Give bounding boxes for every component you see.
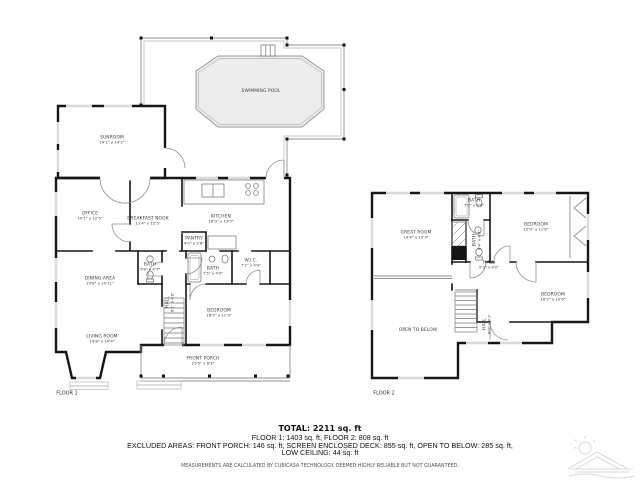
floorplan-drawing [0, 0, 640, 480]
door-arc [165, 148, 185, 168]
floor1-caption: FLOOR 1 [56, 390, 77, 396]
door-arc [490, 322, 508, 340]
label-hall-floor1: HALL8'1" x 4'8" [165, 292, 176, 312]
label-bath-small: BATH5'6" x 4'7" [140, 262, 160, 273]
floor2-caption: FLOOR 2 [373, 390, 394, 396]
floor2-windows [371, 192, 590, 380]
label-stair-hall-floor2: HALL8'0" x 4'1" [482, 314, 493, 334]
label-hall-floor2: HALL5'3" x 4'2" [479, 260, 499, 271]
floorplan-page: SWIMMING POOL SUNROOM14'2" x 14'2" OFFIC… [0, 0, 640, 480]
total-area-text: TOTAL: 2211 sq. ft [0, 424, 640, 433]
label-dining-area: DINING AREA14'8" x 10'11" [85, 276, 115, 287]
pool-ladder-icon [261, 45, 275, 56]
area-summary: TOTAL: 2211 sq. ft FLOOR 1: 1403 sq. ft,… [0, 424, 640, 470]
stove-icon [246, 184, 259, 196]
stairs-floor2 [455, 292, 477, 332]
label-office: OFFICE10'1" x 12'5" [77, 211, 102, 222]
chimney-solid [452, 246, 466, 260]
label-kitchen: KITCHEN16'9" x 13'5" [208, 214, 233, 225]
disclaimer-text: MEASUREMENTS ARE CALCULATED BY CUBICASA … [128, 463, 512, 468]
low-ceiling-hatch [452, 222, 466, 260]
label-bedroom-right: BEDROOM15'9" x 11'6" [523, 222, 548, 233]
label-bath-main: BATH7'5" x 4'9" [203, 266, 223, 277]
bay-steps [70, 382, 108, 386]
swimming-pool-shape [196, 45, 324, 127]
porch-steps [137, 381, 181, 385]
toilet-icon [222, 255, 228, 263]
floor2-walls [372, 193, 588, 378]
label-sunroom: SUNROOM14'2" x 14'2" [99, 135, 124, 146]
label-great-room: GREAT ROOM14'4" x 15'3" [401, 230, 432, 241]
label-swimming-pool: SWIMMING POOL [242, 88, 281, 94]
label-open-to-below: OPEN TO BELOW [399, 327, 437, 333]
door-arc [516, 262, 536, 282]
door-arc [100, 178, 150, 203]
kitchen-island [208, 236, 236, 249]
label-bath-mid: BATH8'4" x 4'8" [472, 230, 483, 250]
sink-icon [209, 256, 215, 262]
label-breakfast-nook: BREAKFAST NOOK11'4" x 12'5" [127, 216, 168, 227]
closet-bifold-doors [574, 198, 586, 246]
label-pantry: PANTRY4'0" x 2'8" [184, 236, 204, 247]
door-arc [190, 284, 206, 300]
door-arc [246, 270, 260, 284]
label-wic: W.I.C.7'2" x 4'9" [241, 258, 261, 269]
label-bath-top: BATH7'0" x 4'0" [464, 198, 484, 209]
door-arc [266, 160, 284, 178]
door-arc [112, 224, 130, 242]
door-arc [164, 327, 182, 345]
low-ceiling-text: LOW CEILING: 44 sq. ft [0, 449, 640, 457]
railing-open-to-below [374, 276, 452, 279]
label-bedroom-floor1: BEDROOM16'0" x 11'9" [206, 308, 231, 319]
label-front-porch: FRONT PORCH23'5" x 6'3" [187, 356, 220, 367]
label-bedroom-bottom: BEDROOM16'2" x 10'6" [540, 292, 565, 303]
label-living-room: LIVING ROOM14'8" x 14'4" [86, 334, 117, 345]
